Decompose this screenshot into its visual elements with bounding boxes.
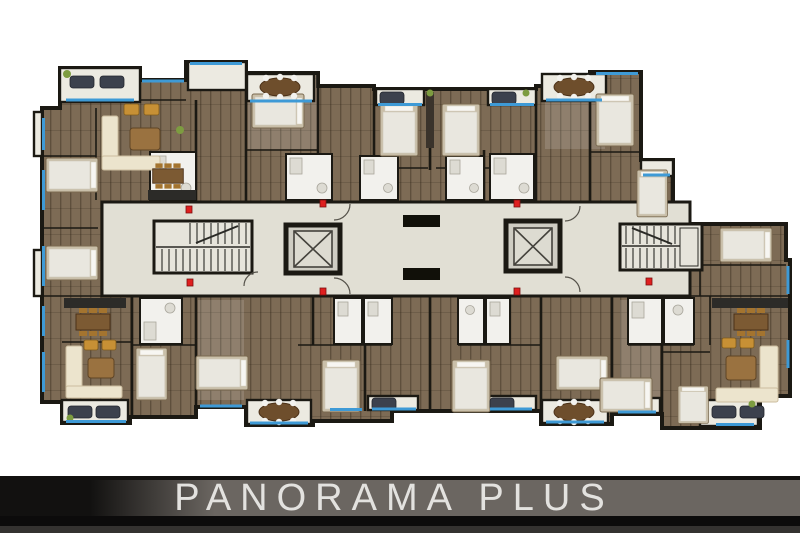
project-title: PANORAMA PLUS	[174, 480, 613, 516]
banner-strip: PANORAMA PLUS	[0, 480, 800, 516]
elevator-left	[286, 225, 340, 273]
oval-dining-bottom-1	[259, 399, 299, 425]
floor-plan	[0, 0, 800, 470]
title-banner: PANORAMA PLUS	[0, 476, 800, 533]
dining-set-right	[734, 308, 768, 336]
dining-set-top-left	[153, 163, 184, 188]
banner-footer-rule	[0, 526, 800, 533]
oval-dining-top-1	[260, 74, 300, 100]
stairwell-left	[154, 221, 252, 273]
floor-plan-page: PANORAMA PLUS	[0, 0, 800, 533]
dining-set-left	[76, 308, 110, 336]
elevator-right	[506, 221, 560, 271]
oval-dining-top-2	[554, 74, 594, 100]
stairwell-right	[620, 224, 702, 270]
